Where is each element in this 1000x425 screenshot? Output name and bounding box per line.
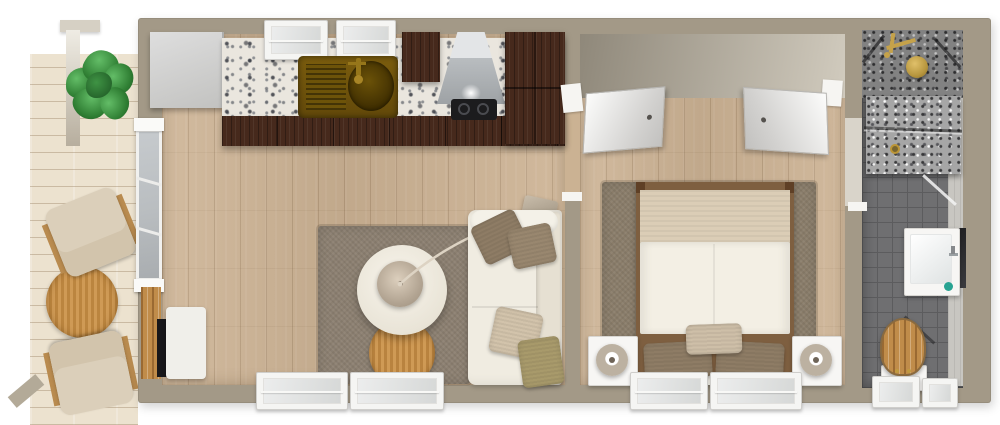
living-room-window[interactable] <box>350 372 444 410</box>
burner <box>477 103 489 115</box>
faucet-spout <box>354 75 363 84</box>
sliding-glass-door[interactable] <box>136 118 162 292</box>
bedroom-wall-face <box>580 34 845 98</box>
living-room-window[interactable] <box>256 372 348 410</box>
chair-cushion <box>47 329 135 417</box>
window-mullion <box>355 391 439 393</box>
door-jamb <box>848 202 867 211</box>
door-jamb <box>561 83 584 113</box>
sink-bowl <box>348 61 394 111</box>
cooktop[interactable] <box>451 99 497 120</box>
doorway-threshold <box>565 108 580 196</box>
toilet[interactable] <box>880 318 926 376</box>
window-pane <box>929 384 951 402</box>
accent-pillow <box>685 323 742 355</box>
kitchen-window[interactable] <box>264 20 328 60</box>
table-lamp[interactable] <box>596 344 628 376</box>
seat-hinge <box>895 369 899 373</box>
burner <box>458 103 470 115</box>
sofa[interactable] <box>468 210 562 385</box>
door-glass <box>139 132 159 278</box>
window-mullion <box>341 40 391 42</box>
bed-blanket <box>640 190 790 244</box>
refrigerator[interactable] <box>150 32 224 108</box>
door-cap <box>134 118 164 131</box>
bedroom-entry-door[interactable] <box>583 86 666 153</box>
duvet-crease <box>713 244 715 332</box>
window-pane <box>879 382 913 402</box>
throw-pillow[interactable] <box>517 335 565 388</box>
faucet <box>951 246 955 254</box>
faucet-handle <box>348 62 366 65</box>
tall-cabinet[interactable] <box>505 32 565 144</box>
kitchen-sink[interactable] <box>298 56 398 118</box>
seat-hinge <box>907 369 911 373</box>
bathroom-window[interactable] <box>872 376 920 408</box>
shower-head[interactable] <box>906 56 928 78</box>
window-mullion <box>269 40 323 42</box>
lamp-finial <box>813 357 819 363</box>
bathroom-window[interactable] <box>922 378 958 408</box>
bathroom-door[interactable] <box>743 87 829 155</box>
window-mullion <box>715 391 797 393</box>
faucet <box>356 58 361 76</box>
sink-basin <box>910 234 952 284</box>
window-mullion <box>635 391 703 393</box>
double-bed[interactable] <box>636 182 794 385</box>
potted-plant[interactable] <box>64 50 136 122</box>
kitchen-window[interactable] <box>336 20 396 60</box>
bedroom-window[interactable] <box>710 372 802 410</box>
vanity-sink[interactable] <box>904 228 960 296</box>
lamp-finial <box>609 357 615 363</box>
shower-floor[interactable] <box>866 96 961 174</box>
door-jamb <box>562 192 582 201</box>
sink-drainboard <box>306 64 346 110</box>
door-knob <box>647 115 652 120</box>
doorway-threshold <box>845 118 862 206</box>
table-lamp[interactable] <box>800 344 832 376</box>
cabinet-seams <box>534 32 536 144</box>
media-bench[interactable] <box>166 307 206 379</box>
window-mullion <box>261 391 343 393</box>
deck-table[interactable] <box>46 266 118 338</box>
bed-duvet <box>640 242 790 334</box>
shower-valve <box>884 52 890 58</box>
door-knob <box>761 117 766 122</box>
floor-drain <box>890 144 900 154</box>
floorplan-3d-view <box>0 0 1000 425</box>
soap-dish <box>944 282 953 291</box>
bedroom-window[interactable] <box>630 372 708 410</box>
wall-cabinet[interactable] <box>402 32 440 82</box>
